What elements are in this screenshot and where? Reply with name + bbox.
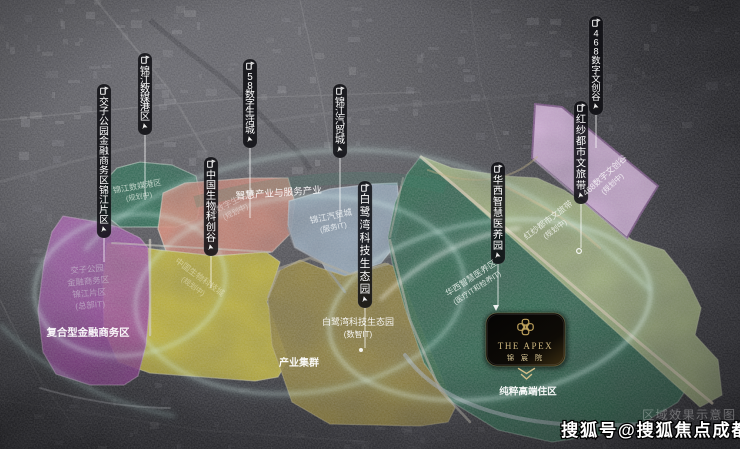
svg-text:白鹭湾科技生态园: 白鹭湾科技生态园 xyxy=(360,193,371,296)
svg-text:复合型金融商务区: 复合型金融商务区 xyxy=(45,326,130,339)
svg-text:锦江数媒港区: 锦江数媒港区 xyxy=(140,64,150,123)
svg-text:交子公园金融商务区锦江片区: 交子公园金融商务区锦江片区 xyxy=(99,95,109,226)
svg-text:红纱都市文旅带: 红纱都市文旅带 xyxy=(576,112,586,191)
svg-text:白鹭湾科技生态园: 白鹭湾科技生态园 xyxy=(322,316,394,327)
svg-text:锦宸院: 锦宸院 xyxy=(507,353,549,362)
svg-text:(数智IT): (数智IT) xyxy=(344,329,373,339)
svg-text:搜狐号@搜狐焦点成都站: 搜狐号@搜狐焦点成都站 xyxy=(561,420,740,440)
svg-text:华西智慧医养园: 华西智慧医养园 xyxy=(493,173,503,252)
svg-text:THE APEX: THE APEX xyxy=(498,341,554,351)
svg-text:产业集群: 产业集群 xyxy=(279,356,319,369)
svg-text:纯粹高端住区: 纯粹高端住区 xyxy=(499,386,557,398)
svg-text:锦江汽贸城: 锦江汽贸城 xyxy=(335,95,345,146)
